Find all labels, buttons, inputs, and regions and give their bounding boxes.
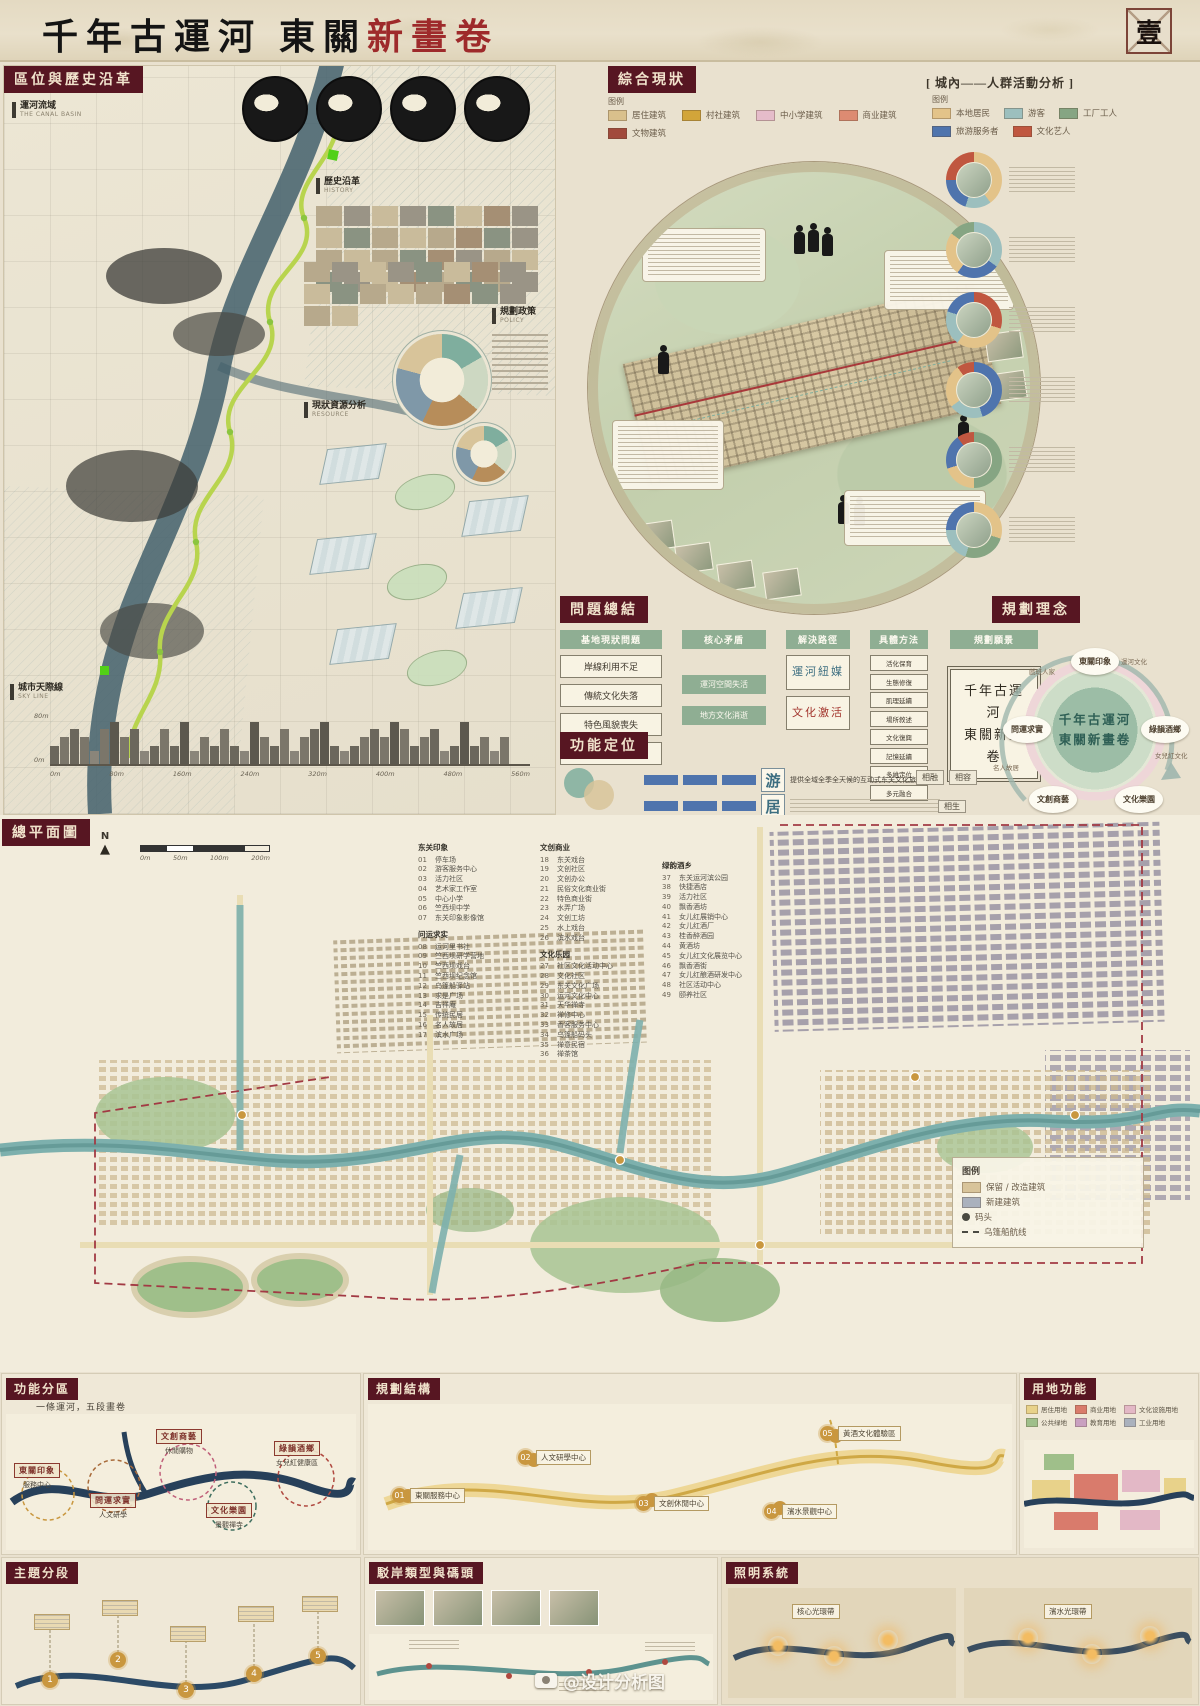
structure-node: 04濱水景觀中心 — [764, 1504, 837, 1519]
mp-list-item: 26滨水戏台 — [540, 934, 660, 944]
section-title-location: 區位與歷史沿革 — [4, 66, 143, 93]
structure-node: 03文創休閒中心 — [636, 1496, 709, 1511]
axon-diagram — [329, 623, 397, 665]
structure-node: 01東關服務中心 — [392, 1488, 465, 1503]
axon-diagram — [319, 443, 387, 485]
mp-list-item: 37东关运河滨公园 — [662, 874, 802, 884]
zone-label: 東關印象 服務中心 — [14, 1458, 60, 1490]
distance-mark: 320m — [308, 770, 327, 778]
people-silhouette — [658, 352, 669, 374]
mp-list-item: 22特色商业街 — [540, 895, 660, 905]
crowd-legend: 本地居民 游客 工厂工人 旅游服务者 文化艺人 — [932, 104, 1182, 140]
section-masterplan: 總平面圖 N ▲ 0m50m100m200m 东关印象 01停车场02游客服务中… — [0, 815, 1200, 1372]
mp-list-item: 38快捷酒店 — [662, 883, 802, 893]
zone-label: 文創商藝 休閒購物 — [156, 1424, 202, 1456]
activity-label-placeholder — [1009, 377, 1075, 403]
mp-list-item: 46飘香酒街 — [662, 962, 802, 972]
header-band: 千年古運河 東關新畫卷 壹 — [0, 0, 1200, 62]
lighting-minimap-a-graphics — [728, 1588, 956, 1698]
activity-donut-row — [946, 222, 1075, 278]
concept-center-line2: 東關新畫卷 — [1059, 733, 1132, 747]
mp-list-item: 31天华禅寺 — [540, 1001, 660, 1011]
zone-label: 問運求實 人文研學 — [90, 1488, 136, 1520]
skyline-profile — [50, 712, 530, 766]
light-glow — [768, 1636, 788, 1656]
label-resource-zh: 現狀資源分析 — [312, 401, 366, 411]
blue-tag — [644, 775, 678, 785]
distance-mark: 480m — [444, 770, 463, 778]
people-silhouette — [822, 234, 833, 256]
section-title-concept: 規劃理念 — [992, 596, 1080, 623]
activity-label-placeholder — [1009, 517, 1075, 543]
site-problem-item: 傳統文化失落 — [560, 684, 662, 707]
section-themes: 主題分段 12345 — [2, 1558, 360, 1704]
activity-donut-chart — [946, 362, 1002, 418]
mp-list-item: 41女儿红展销中心 — [662, 913, 802, 923]
structure-node: 02人文研學中心 — [518, 1450, 591, 1465]
north-label: N — [101, 831, 109, 842]
axon-diagram — [309, 533, 377, 575]
mp-list-col3: 绿韵酒乡 37东关运河滨公园38快捷酒店39活力社区40飘香酒坊41女儿红展销中… — [662, 855, 802, 1001]
label-skyline: 城市天際線 SKY LINE — [10, 684, 63, 700]
mp-group-title: 绿韵酒乡 — [662, 861, 802, 872]
status-legend-item: 中小学建筑 — [756, 109, 823, 121]
mp-list-item: 14吉祥庵 — [418, 1001, 530, 1011]
mp-list-item: 15传统民居 — [418, 1011, 530, 1021]
scale-label: 200m — [251, 854, 270, 862]
mp-list-item: 43桂香醉酒园 — [662, 932, 802, 942]
section-concept: 規劃理念 千年古運河 東關新畫卷 東關印象問運求實綠韻酒鄉文創商藝文化樂園 戲班… — [992, 596, 1198, 814]
axon-diagram — [455, 587, 523, 629]
relation-word: 相生 — [938, 800, 966, 813]
blue-tag — [722, 801, 756, 811]
theme-segment-number: 3 — [178, 1682, 194, 1698]
mp-list-item: 19文创社区 — [540, 865, 660, 875]
relation-words-bottom: 相生 — [938, 794, 966, 813]
activity-label-placeholder — [1009, 167, 1075, 193]
path-item-culture: 文化激活 — [786, 696, 850, 731]
mp-list-item: 42女儿红酒厂 — [662, 922, 802, 932]
zones-minimap: 東關印象 服務中心 問運求實 人文研學 文創商藝 休閒購物 文化樂園 景觀禪寺 … — [6, 1414, 356, 1550]
page-title-black: 千年古運河 東關 — [42, 17, 367, 57]
mp-list-item: 35禅意民宿 — [540, 1041, 660, 1051]
concept-ring-label: 名人故居 — [993, 762, 1019, 772]
activity-donut-rail — [946, 152, 1075, 572]
label-canal-basin-en: THE CANAL BASIN — [20, 112, 82, 119]
label-skyline-en: SKY LINE — [18, 694, 63, 701]
method-item: 生態修復 — [870, 674, 928, 690]
mp-list-item: 20文创办公 — [540, 875, 660, 885]
mp-group-title: 文化乐园 — [540, 950, 660, 961]
mp-list-item: 48社区活动中心 — [662, 981, 802, 991]
landuse-legend-item: 教育用地 — [1075, 1417, 1116, 1427]
revetment-callout-placeholder — [645, 1642, 695, 1652]
skyline-distance-marks: 0m80m160m240m320m400m480m560m — [50, 770, 530, 778]
blue-tag — [644, 801, 678, 811]
structure-minimap-graphics — [368, 1404, 1012, 1550]
activity-donut-chart — [946, 292, 1002, 348]
core-conflict-item: 地方文化消逝 — [682, 706, 766, 725]
activity-donut-row — [946, 432, 1075, 488]
photo-tile — [716, 560, 756, 593]
crowd-legend-item: 文化艺人 — [1013, 125, 1071, 137]
mp-list-item: 39活力社区 — [662, 893, 802, 903]
inset-map-china — [316, 76, 382, 142]
section-title-themes: 主題分段 — [6, 1562, 78, 1584]
flow-col-core-title: 核心矛盾 — [682, 630, 766, 649]
concept-circle-diagram: 千年古運河 東關新畫卷 東關印象問運求實綠韻酒鄉文創商藝文化樂園 戲班人家運河文… — [995, 630, 1195, 830]
method-item: 肌理延續 — [870, 692, 928, 708]
label-skyline-zh: 城市天際線 — [18, 683, 63, 693]
landuse-legend-item: 商业用地 — [1075, 1404, 1116, 1414]
inset-map-city — [464, 76, 530, 142]
crowd-legend-item: 旅游服务者 — [932, 125, 999, 137]
activity-donut-chart — [946, 222, 1002, 278]
section-title-positioning: 功能定位 — [560, 732, 648, 759]
landuse-legend-item: 居住用地 — [1026, 1404, 1067, 1414]
concept-bubble: 綠韻酒鄉 — [1141, 716, 1189, 743]
folio-char: 壹 — [1136, 13, 1162, 50]
landuse-legend-item: 公共绿地 — [1026, 1417, 1067, 1427]
inset-map-world — [242, 76, 308, 142]
concept-ring-label: 運河文化 — [1121, 656, 1147, 666]
activity-donut-row — [946, 362, 1075, 418]
crowd-legend-item: 游客 — [1004, 107, 1045, 119]
inset-map-province — [390, 76, 456, 142]
elev-mark: 80m — [34, 712, 44, 720]
activity-donut-chart — [946, 152, 1002, 208]
revetment-photo — [375, 1590, 425, 1626]
concept-bubble: 文創商藝 — [1029, 786, 1077, 813]
theme-label-placeholder — [170, 1626, 206, 1642]
mp-legend-route: 乌篷船航线 — [962, 1226, 1134, 1238]
revetment-callout-placeholder — [409, 1640, 459, 1650]
positioning-desc-placeholder — [790, 799, 940, 813]
concept-bubble: 問運求實 — [1003, 716, 1051, 743]
label-resource-en: RESOURCE — [312, 412, 366, 419]
blue-tag — [683, 801, 717, 811]
zone-label: 綠韻酒鄉 女兒紅健康區 — [274, 1436, 320, 1468]
section-location-history: 區位與歷史沿革 運河流域 THE CANAL BASIN 歷史沿革 HISTOR… — [4, 66, 555, 814]
flow-col-core: 核心矛盾 運河空間失活地方文化消逝 — [682, 630, 766, 725]
section-title-lighting: 照明系統 — [726, 1562, 798, 1584]
concept-bubble: 東關印象 — [1071, 648, 1119, 675]
activity-donut-chart — [946, 502, 1002, 558]
landuse-minimap — [1024, 1440, 1194, 1548]
mp-legend-keep: 保留 / 改造建筑 — [962, 1181, 1134, 1193]
section-title-landuse: 用地功能 — [1024, 1378, 1096, 1400]
structure-minimap: 01東關服務中心 02人文研學中心 03文創休閒中心 04濱水景觀中心 05黃酒… — [368, 1404, 1012, 1550]
mp-list-item: 08运河里书社 — [418, 943, 530, 953]
status-legend-item: 居住建筑 — [608, 109, 666, 121]
mp-legend-title: 图例 — [962, 1164, 1134, 1177]
section-title-zones: 功能分區 — [6, 1378, 78, 1400]
scale-label: 50m — [173, 854, 188, 862]
method-item: 場所敘述 — [870, 711, 928, 727]
light-glow — [824, 1646, 844, 1666]
revetment-photo — [549, 1590, 599, 1626]
mp-list-item: 01停车场 — [418, 856, 530, 866]
mp-list-item: 44黄酒坊 — [662, 942, 802, 952]
status-legend: 居住建筑 村社建筑 中小学建筑 商业建筑 文物建筑 — [608, 106, 938, 142]
flow-col-site-title: 基地現狀問題 — [560, 630, 662, 649]
activity-donut-row — [946, 152, 1075, 208]
landuse-legend: 居住用地 商业用地 文化设施用地 公共绿地 教育用地 工业用地 — [1026, 1404, 1194, 1427]
distance-mark: 560m — [511, 770, 530, 778]
mp-list-item: 36禅茶馆 — [540, 1050, 660, 1060]
photo-tile — [674, 542, 714, 575]
mp-list-item: 17滨水广场 — [418, 1031, 530, 1041]
lighting-label: 濱水光環帶 — [1044, 1604, 1092, 1619]
distance-mark: 80m — [109, 770, 124, 778]
mp-legend-dock: 码头 — [962, 1211, 1134, 1223]
mp-list-item: 25水上戏台 — [540, 924, 660, 934]
mp-legend-new: 新建建筑 — [962, 1196, 1134, 1208]
concept-center-line1: 千年古運河 — [1059, 713, 1132, 727]
flow-col-path-title: 解決路徑 — [786, 630, 850, 649]
speech-bubble — [612, 420, 724, 490]
mp-list-item: 28文化社区 — [540, 972, 660, 982]
activity-label-placeholder — [1009, 307, 1075, 333]
theme-segment-number: 4 — [246, 1666, 262, 1682]
scale-label: 100m — [210, 854, 229, 862]
theme-label-placeholder — [238, 1606, 274, 1622]
mp-list-item: 13求是广场 — [418, 992, 530, 1002]
light-glow — [1082, 1644, 1102, 1664]
method-item: 活化保育 — [870, 655, 928, 671]
section-lighting: 照明系統 核心光環帶 濱水光環帶 — [722, 1558, 1198, 1704]
mp-list-item: 27社区文化活动中心 — [540, 962, 660, 972]
mp-list-item: 49颐养社区 — [662, 991, 802, 1001]
status-legend-item: 文物建筑 — [608, 127, 666, 139]
landuse-legend-item: 工业用地 — [1124, 1417, 1165, 1427]
flow-col-path: 解決路徑 運河紐媒 文化激活 — [786, 630, 850, 730]
people-silhouette — [794, 232, 805, 254]
lighting-minimap-b: 濱水光環帶 — [964, 1588, 1192, 1698]
lighting-label: 核心光環帶 — [792, 1604, 840, 1619]
section-structure: 規劃結構 01東關服務中心 02人文研學中心 03文創休閒中心 04濱水景觀中心… — [364, 1374, 1016, 1554]
elev-mark: 0m — [34, 756, 44, 764]
section-landuse: 用地功能 居住用地 商业用地 文化设施用地 公共绿地 教育用地 工业用地 — [1020, 1374, 1198, 1554]
core-conflict-item: 運河空間失活 — [682, 675, 766, 694]
people-silhouette — [808, 230, 819, 252]
section-zones: 功能分區 一條運河，五段畫卷 東關印象 服務中心 問運求實 人文研學 文創商藝 … — [2, 1374, 360, 1554]
label-canal-basin: 運河流域 THE CANAL BASIN — [12, 102, 82, 118]
theme-segment-number: 1 — [42, 1672, 58, 1688]
mp-list-item: 10竺西坝戏台 — [418, 962, 530, 972]
blue-tag — [722, 775, 756, 785]
landuse-minimap-graphics — [1024, 1440, 1194, 1548]
activity-label-placeholder — [1009, 447, 1075, 473]
section-positioning: 功能定位 游 提供全域全季全天候的互动式东关文化旅游服务 居 相融 相容 相生 — [560, 732, 990, 814]
mp-list-item: 12乌篷船驿站 — [418, 982, 530, 992]
themes-diagram: 12345 — [6, 1586, 356, 1700]
revetment-photo — [433, 1590, 483, 1626]
distance-mark: 0m — [50, 770, 60, 778]
mp-list-col1: 东关印象 01停车场02游客服务中心03活力社区04艺术家工作室05中心小学06… — [418, 837, 530, 1041]
positioning-row-tour: 游 提供全域全季全天候的互动式东关文化旅游服务 — [644, 768, 940, 792]
activity-donut-row — [946, 292, 1075, 348]
watermark: @设计分析图 — [535, 1668, 665, 1693]
scale-label: 0m — [140, 854, 150, 862]
label-canal-basin-zh: 運河流域 — [20, 101, 56, 111]
section-title-structure: 規劃結構 — [368, 1378, 440, 1400]
concept-ring-label: 戲班人家 — [1029, 666, 1055, 676]
page-title-red: 新畫卷 — [367, 17, 499, 57]
structure-node: 05黃酒文化體驗區 — [820, 1426, 901, 1441]
camera-icon — [535, 1673, 557, 1688]
theme-label-placeholder — [34, 1614, 70, 1630]
mp-list-item: 34乌篷船码头 — [540, 1031, 660, 1041]
positioning-char-tour: 游 — [761, 768, 785, 792]
concept-bubble: 文化樂園 — [1115, 786, 1163, 813]
section-title-status: 綜合現狀 — [608, 66, 696, 93]
activity-donut-chart — [946, 432, 1002, 488]
mp-list-item: 04艺术家工作室 — [418, 885, 530, 895]
skyline-elevation-marks: 80m0m — [34, 712, 44, 764]
distance-mark: 160m — [173, 770, 192, 778]
section-title-masterplan: 總平面圖 — [2, 819, 90, 846]
axon-diagram — [461, 495, 529, 537]
speech-bubble — [642, 228, 766, 282]
relation-word: 相容 — [949, 770, 977, 785]
section-title-revetment: 駁岸類型與碼頭 — [369, 1562, 483, 1584]
inset-map-row — [242, 76, 530, 142]
zones-subtitle: 一條運河，五段畫卷 — [36, 1400, 126, 1413]
light-glow — [878, 1630, 898, 1650]
theme-segment-number: 5 — [310, 1648, 326, 1664]
scale-bar: 0m50m100m200m — [140, 845, 270, 862]
policy-photo-grid — [304, 262, 548, 326]
distance-mark: 240m — [241, 770, 260, 778]
relation-words-top: 相融 相容 — [916, 770, 977, 785]
mp-list-col2: 文创商业 18东关戏台19文创社区20文创办公21民俗文化商业街22特色商业街2… — [540, 837, 660, 1060]
north-arrow-glyph: ▲ — [100, 842, 110, 857]
theme-label-placeholder — [302, 1596, 338, 1612]
blue-tag — [683, 775, 717, 785]
crowd-legend-item: 工厂工人 — [1059, 107, 1117, 119]
label-history-zh: 歷史沿革 — [324, 177, 360, 187]
light-glow — [1018, 1628, 1038, 1648]
mp-list-item: 16名人故居 — [418, 1021, 530, 1031]
mp-list-item: 24文创工坊 — [540, 914, 660, 924]
label-history: 歷史沿革 HISTORY — [316, 178, 360, 194]
mp-list-item: 02游客服务中心 — [418, 865, 530, 875]
label-resource: 現狀資源分析 RESOURCE — [304, 402, 366, 418]
resource-radial-diagram — [396, 334, 488, 426]
landuse-legend-item: 文化设施用地 — [1124, 1404, 1178, 1414]
status-legend-item: 村社建筑 — [682, 109, 740, 121]
crowd-legend-item: 本地居民 — [932, 107, 990, 119]
mp-list-item: 05中心小学 — [418, 895, 530, 905]
mp-list-item: 18东关戏台 — [540, 856, 660, 866]
status-legend-item: 商业建筑 — [839, 109, 897, 121]
mp-list-item: 30运河文化中心 — [540, 992, 660, 1002]
relation-word: 相融 — [916, 770, 944, 785]
page-title: 千年古運河 東關新畫卷 — [42, 8, 499, 60]
theme-segment-number: 2 — [110, 1652, 126, 1668]
zone-label: 文化樂園 景觀禪寺 — [206, 1498, 252, 1530]
activity-label-placeholder — [1009, 237, 1075, 263]
section-title-problems: 問題總結 — [560, 596, 648, 623]
mp-list-item: 09竺西坝研学营地 — [418, 952, 530, 962]
theme-label-placeholder — [102, 1600, 138, 1616]
mp-list-item: 07东关印象影像馆 — [418, 914, 530, 924]
mp-list-item: 33香客服务中心 — [540, 1021, 660, 1031]
mp-list-item: 21民俗文化商业街 — [540, 885, 660, 895]
path-item-canal: 運河紐媒 — [786, 655, 850, 690]
light-glow — [1140, 1626, 1160, 1646]
mp-list-item: 45女儿红文化展览中心 — [662, 952, 802, 962]
concept-center-text: 千年古運河 東關新畫卷 — [1045, 710, 1145, 750]
photo-tile — [636, 520, 676, 553]
lighting-minimap-a: 核心光環帶 — [728, 1588, 956, 1698]
mp-list-item: 40飘香酒坊 — [662, 903, 802, 913]
mp-group-title: 文创商业 — [540, 843, 660, 854]
site-problem-item: 岸線利用不足 — [560, 655, 662, 678]
section-status: 綜合現狀 图例 居住建筑 村社建筑 中小学建筑 商业建筑 文物建筑 — [560, 66, 1196, 596]
mp-list-item: 47女儿红酿酒研发中心 — [662, 971, 802, 981]
policy-text-placeholder — [492, 334, 548, 394]
positioning-circle-b — [584, 780, 614, 810]
mp-list-item: 11竺西坝纪念馆 — [418, 972, 530, 982]
mp-list-item: 03活力社区 — [418, 875, 530, 885]
mp-list-item: 32禅修中心 — [540, 1011, 660, 1021]
concept-ring-label: 女兒紅文化 — [1155, 750, 1188, 760]
crowd-analysis-title: [ 城內——人群活動分析 ] — [926, 74, 1074, 91]
distance-mark: 400m — [376, 770, 395, 778]
mp-list-item: 23水弄广场 — [540, 904, 660, 914]
activity-donut-row — [946, 502, 1075, 558]
revetment-photo — [491, 1590, 541, 1626]
section-problems: 問題總結 基地現狀問題 岸線利用不足傳統文化失落特色風貌喪失社會生活隔閡 核心矛… — [560, 596, 990, 730]
label-history-en: HISTORY — [324, 188, 360, 195]
flow-col-method-title: 具體方法 — [870, 630, 928, 649]
watermark-text: @设计分析图 — [563, 1668, 665, 1693]
masterplan-legend: 图例 保留 / 改造建筑 新建建筑 码头 乌篷船航线 — [952, 1157, 1144, 1248]
mp-list-item: 06竺西坝中学 — [418, 904, 530, 914]
revetment-photo-row — [375, 1590, 599, 1626]
mp-list-item: 29东关文化广场 — [540, 982, 660, 992]
mp-group-title: 东关印象 — [418, 843, 530, 854]
resource-radial-diagram-small — [456, 426, 512, 482]
north-arrow: N ▲ — [100, 831, 110, 857]
mp-group-title: 问运求实 — [418, 930, 530, 941]
folio-number: 壹 — [1126, 8, 1172, 54]
